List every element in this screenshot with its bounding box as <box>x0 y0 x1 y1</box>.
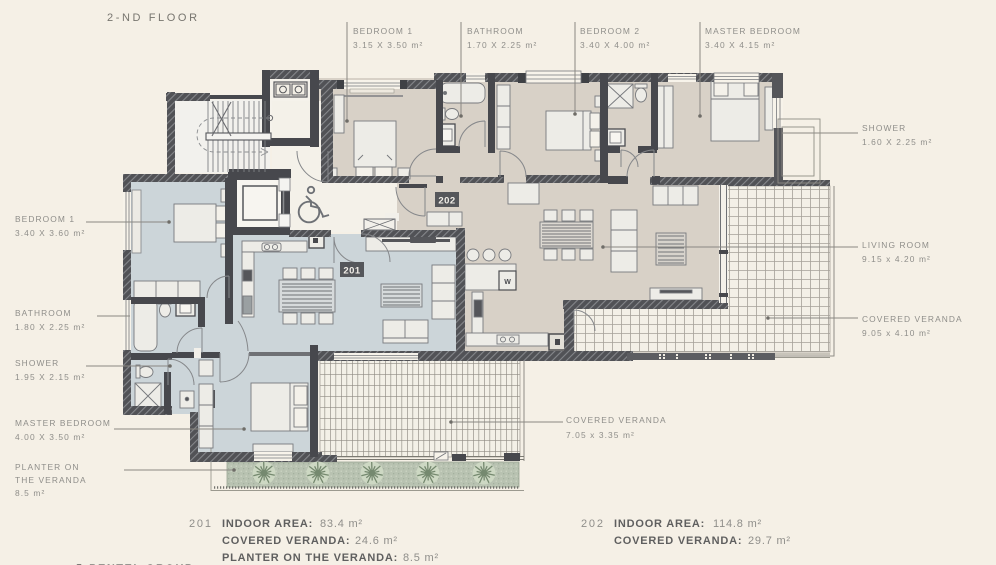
svg-text:W: W <box>504 279 511 286</box>
svg-text:BATHROOM: BATHROOM <box>15 308 72 318</box>
svg-text:MASTER BEDROOM: MASTER BEDROOM <box>15 418 111 428</box>
svg-text:9.05 x 4.10 m²: 9.05 x 4.10 m² <box>862 328 931 338</box>
svg-text:BEDROOM 1: BEDROOM 1 <box>15 214 75 224</box>
svg-text:LIVING ROOM: LIVING ROOM <box>862 240 930 250</box>
svg-text:3.40 X 4.15 m²: 3.40 X 4.15 m² <box>705 40 775 50</box>
svg-text:PLANTER ON THE VERANDA:: PLANTER ON THE VERANDA: <box>222 552 398 564</box>
svg-text:INDOOR AREA:: INDOOR AREA: <box>222 518 313 530</box>
svg-text:1.95 X 2.15 m²: 1.95 X 2.15 m² <box>15 372 85 382</box>
svg-text:4.00 X 3.50 m²: 4.00 X 3.50 m² <box>15 432 85 442</box>
svg-text:COVERED VERANDA: COVERED VERANDA <box>862 314 963 324</box>
svg-text:7.05 x 3.35 m²: 7.05 x 3.35 m² <box>566 430 635 440</box>
svg-text:COVERED VERANDA: COVERED VERANDA <box>566 415 667 425</box>
svg-text:BEDROOM 2: BEDROOM 2 <box>580 26 640 36</box>
svg-text:BEDROOM 1: BEDROOM 1 <box>353 26 413 36</box>
svg-text:COVERED VERANDA:: COVERED VERANDA: <box>222 535 350 547</box>
svg-text:29.7 m²: 29.7 m² <box>748 535 791 547</box>
svg-text:8.5 m²: 8.5 m² <box>15 488 45 498</box>
svg-text:1.70 X 2.25 m²: 1.70 X 2.25 m² <box>467 40 537 50</box>
svg-text:1.80 X 2.25 m²: 1.80 X 2.25 m² <box>15 322 85 332</box>
svg-text:9.15 x 4.20 m²: 9.15 x 4.20 m² <box>862 254 931 264</box>
svg-text:BATHROOM: BATHROOM <box>467 26 524 36</box>
svg-text:SHOWER: SHOWER <box>15 358 59 368</box>
svg-text:3.40 X 4.00 m²: 3.40 X 4.00 m² <box>580 40 650 50</box>
svg-text:MASTER BEDROOM: MASTER BEDROOM <box>705 26 801 36</box>
svg-text:8.5 m²: 8.5 m² <box>403 552 439 564</box>
svg-text:202: 202 <box>581 518 605 530</box>
svg-text:3.15 X 3.50 m²: 3.15 X 3.50 m² <box>353 40 423 50</box>
svg-text:24.6 m²: 24.6 m² <box>355 535 398 547</box>
svg-text:114.8 m²: 114.8 m² <box>713 518 762 530</box>
svg-text:INDOOR AREA:: INDOOR AREA: <box>614 518 705 530</box>
svg-text:3.40 X 3.60 m²: 3.40 X 3.60 m² <box>15 228 85 238</box>
svg-text:83.4 m²: 83.4 m² <box>320 518 363 530</box>
svg-text:202: 202 <box>438 196 455 207</box>
svg-text:COVERED VERANDA:: COVERED VERANDA: <box>614 535 742 547</box>
svg-text:201: 201 <box>189 518 213 530</box>
svg-text:THE VERANDA: THE VERANDA <box>15 475 87 485</box>
svg-text:SHOWER: SHOWER <box>862 123 906 133</box>
svg-text:1.60 X 2.25 m²: 1.60 X 2.25 m² <box>862 137 932 147</box>
svg-text:PLANTER ON: PLANTER ON <box>15 462 80 472</box>
svg-text:2-ND FLOOR: 2-ND FLOOR <box>107 12 200 24</box>
svg-text:201: 201 <box>343 266 361 277</box>
